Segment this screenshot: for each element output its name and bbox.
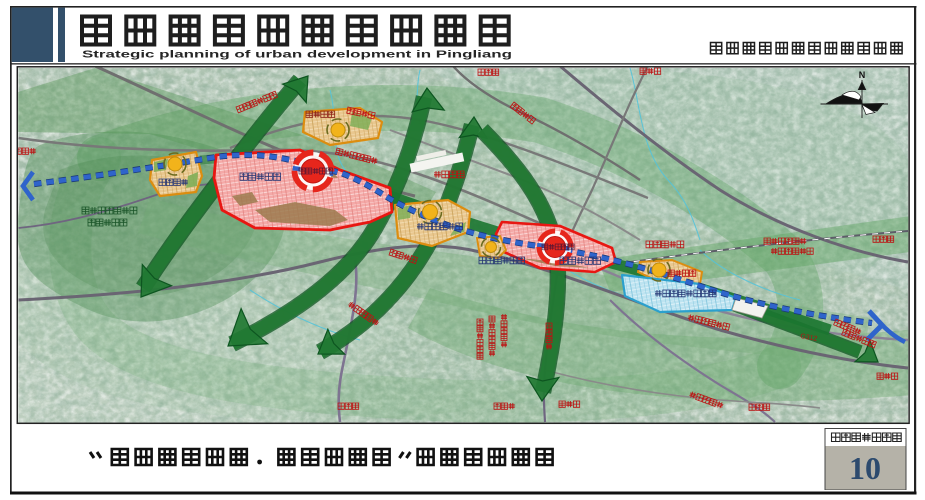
svg-text:Strategic planning of urban de: Strategic planning of urban development … bbox=[82, 50, 512, 61]
svg-text:10: 10 bbox=[849, 450, 881, 486]
svg-text:N: N bbox=[859, 70, 866, 80]
